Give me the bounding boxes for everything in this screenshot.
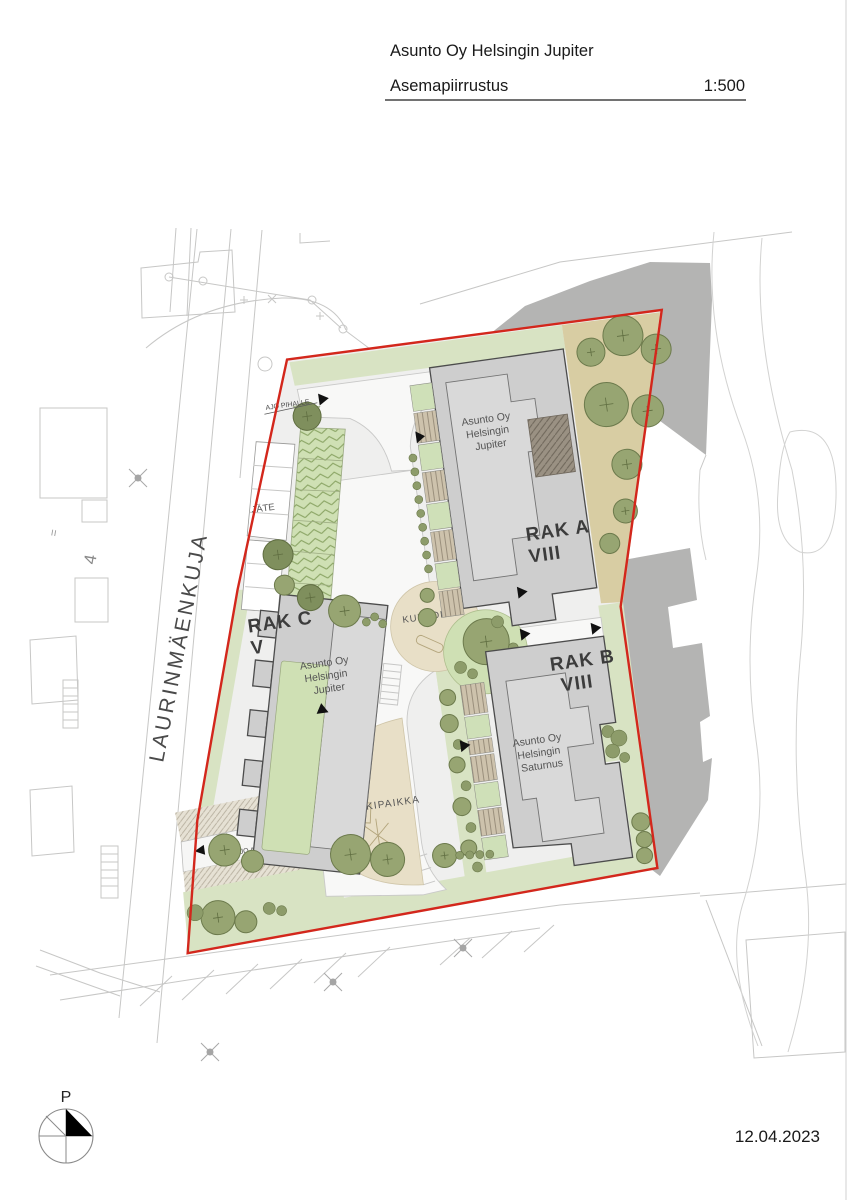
stairs-icon: [63, 680, 78, 728]
building-c-floors: V: [249, 637, 265, 660]
north-needle-icon: [66, 1109, 92, 1136]
north-arrow: P: [39, 1089, 93, 1163]
project-name: Asunto Oy Helsingin Jupiter: [390, 42, 594, 60]
street-lamp-icon: [201, 1043, 219, 1061]
drawing-date: 12.04.2023: [735, 1127, 820, 1146]
level-mark-label: =: [46, 528, 61, 537]
contour-lines: [699, 232, 836, 1052]
building-b-floors: VIII: [560, 671, 595, 696]
street-lamp-icon: [454, 939, 472, 957]
north-label: P: [61, 1089, 72, 1106]
stairs-icon: [101, 846, 118, 898]
street-lamp-icon: [324, 973, 342, 991]
building-b-owner-label: Asunto Oy Helsingin Saturnus: [512, 731, 569, 776]
drawing-scale: 1:500: [704, 77, 745, 95]
plot-number-label: 4: [80, 553, 100, 566]
site-plan-drawing: JÄTE AJO AUTOHALLIIN LEIKKIPAIKKA: [0, 0, 850, 1200]
building-a-floors: VIII: [527, 542, 562, 567]
street-lamp-icon: [129, 469, 147, 487]
drawing-type: Asemapiirrustus: [390, 77, 508, 95]
title-block: Asunto Oy Helsingin Jupiter Asemapiirrus…: [385, 42, 746, 100]
roof-terrace-hatch: [528, 414, 576, 477]
